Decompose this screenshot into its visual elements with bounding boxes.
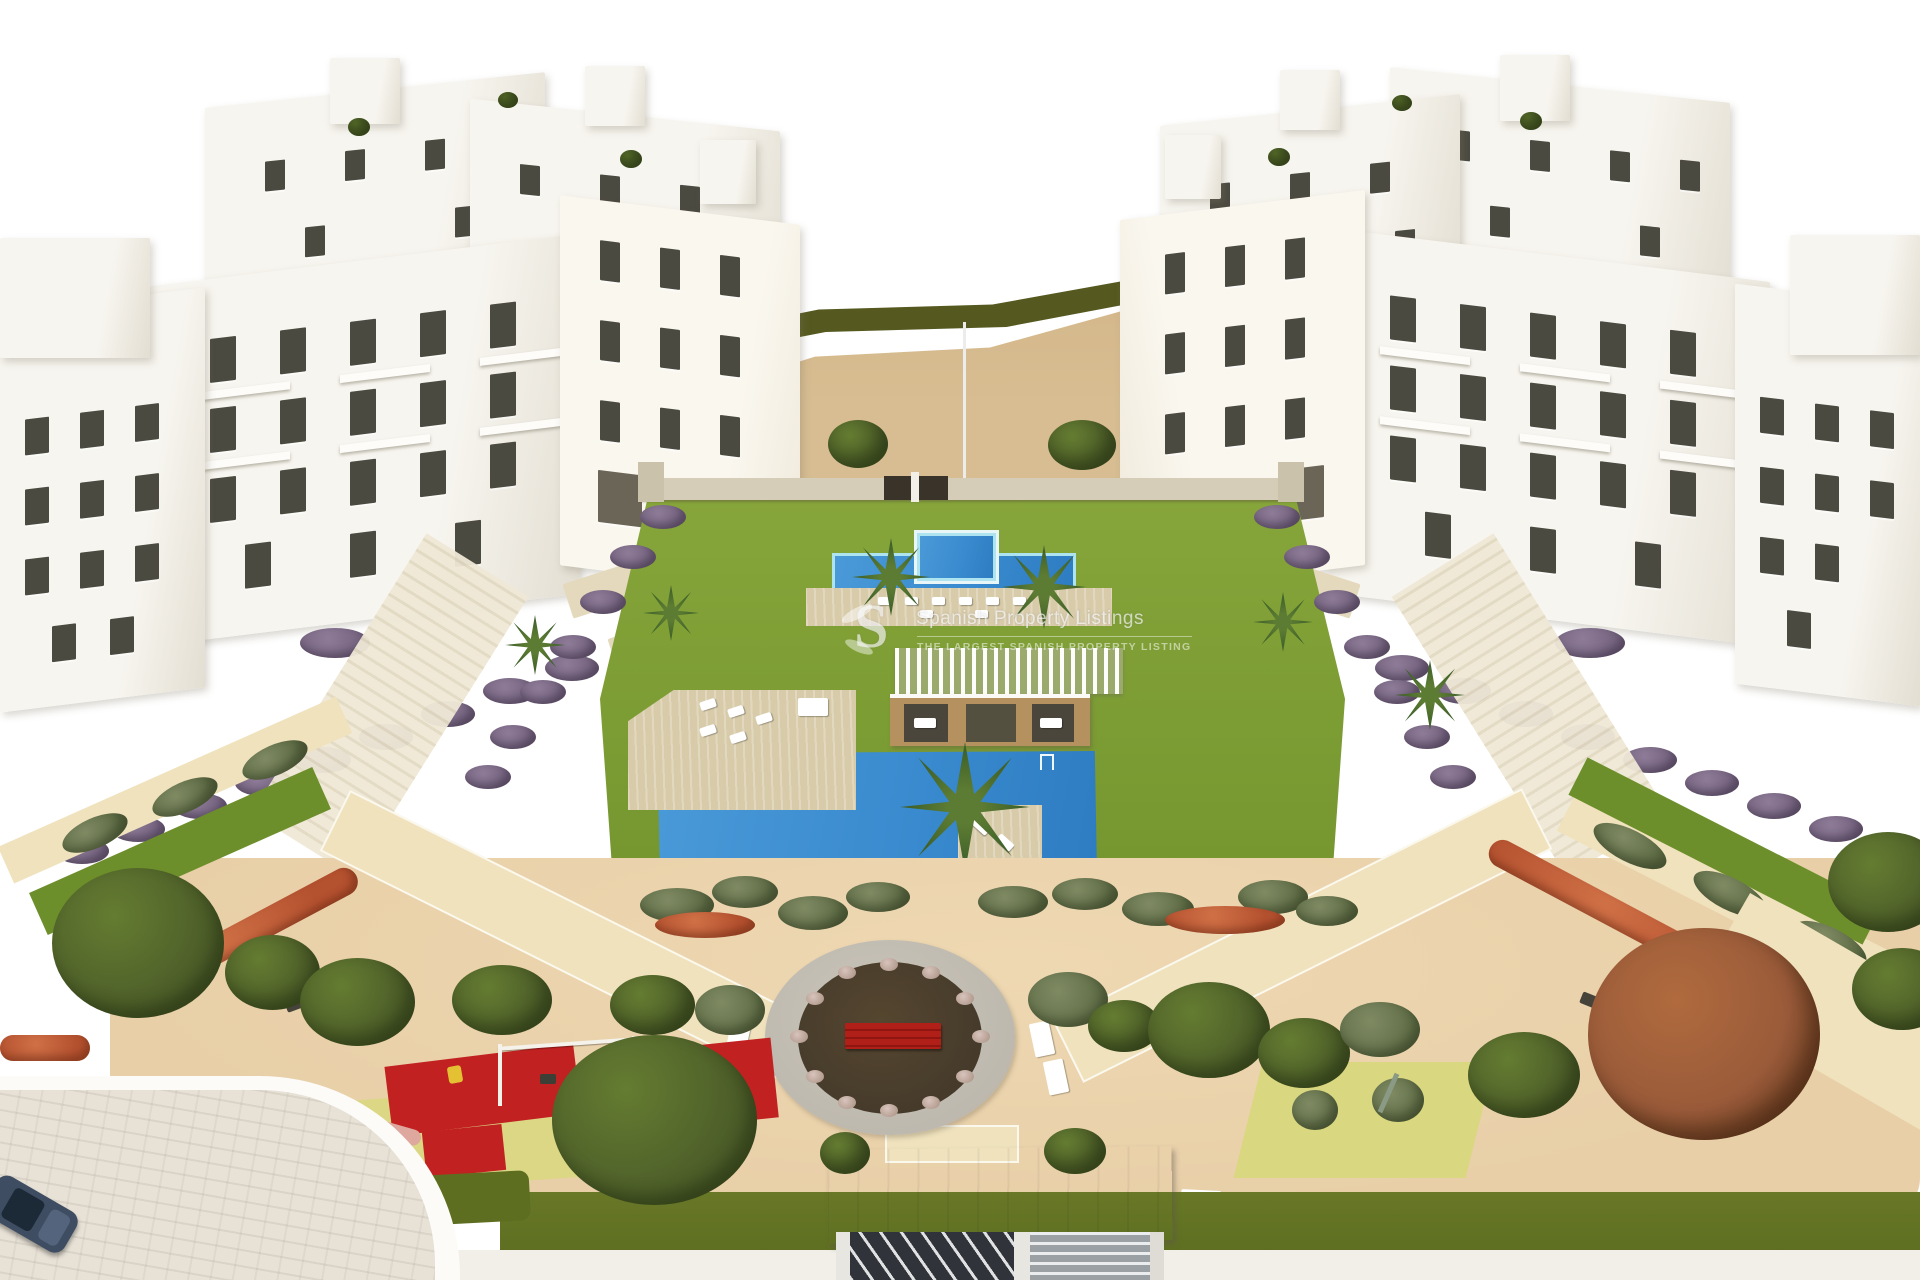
window: [720, 255, 740, 297]
window: [720, 335, 740, 377]
window: [1460, 444, 1486, 491]
balcony: [480, 347, 570, 366]
rose-bush: [922, 966, 940, 979]
window: [1815, 473, 1839, 512]
window: [1600, 391, 1626, 438]
tree: [610, 975, 695, 1035]
entrance-bush: [820, 1132, 870, 1174]
bush: [978, 886, 1048, 918]
building-left-tower: [330, 58, 400, 124]
window: [1165, 332, 1185, 374]
garden-wall: [640, 478, 1300, 500]
window: [305, 225, 325, 257]
flagpole: [963, 322, 966, 482]
window: [1760, 397, 1784, 436]
window: [1225, 405, 1245, 447]
rose-bush: [880, 958, 898, 971]
purple-hedge: [640, 505, 686, 529]
window: [1530, 527, 1556, 574]
red-flower-bush: [1165, 906, 1285, 934]
window: [1815, 543, 1839, 582]
rooftop-plant: [498, 92, 518, 108]
window: [600, 320, 620, 362]
window: [345, 149, 365, 181]
bush: [778, 896, 848, 930]
bush: [1296, 896, 1358, 926]
autumn-tree: [1588, 928, 1820, 1140]
pool-ladder: [1040, 754, 1054, 770]
stone-pillar: [638, 462, 664, 502]
play-mat-red: [422, 1124, 506, 1178]
bush: [846, 882, 910, 912]
window: [1285, 397, 1305, 439]
window: [1390, 295, 1416, 342]
window: [1225, 325, 1245, 367]
rooftop-plant: [1392, 95, 1412, 111]
entrance-pillar: [836, 1232, 850, 1280]
window: [1370, 162, 1390, 194]
gate-pillar: [911, 472, 919, 502]
balcony: [200, 451, 290, 470]
play-mat-yellow: [1234, 1062, 1495, 1178]
garden-tree: [828, 420, 888, 468]
building-left-tower: [700, 140, 756, 204]
rose-bush: [956, 992, 974, 1005]
purple-hedge: [610, 545, 656, 569]
window: [600, 400, 620, 442]
olive-tree: [52, 868, 224, 1018]
building-left-corner: [0, 238, 150, 358]
window: [1490, 206, 1510, 238]
bush: [1052, 878, 1118, 910]
play-equipment: [1292, 1090, 1338, 1130]
window: [1760, 537, 1784, 576]
window: [420, 450, 446, 497]
garden-gate: [918, 476, 948, 500]
window: [1760, 467, 1784, 506]
purple-hedge: [580, 590, 626, 614]
window: [1285, 237, 1305, 279]
entrance-bush: [1044, 1128, 1106, 1174]
window: [1635, 541, 1661, 588]
bush: [695, 985, 765, 1035]
building-left-facade: [150, 234, 580, 647]
balcony: [1380, 416, 1470, 435]
window: [1670, 400, 1696, 447]
window: [52, 623, 76, 662]
window: [350, 319, 376, 366]
purple-hedge: [520, 680, 566, 704]
rooftop-plant: [348, 118, 370, 136]
window: [135, 403, 159, 442]
rose-bush: [880, 1104, 898, 1117]
building-right-tower: [1165, 135, 1221, 199]
window: [660, 248, 680, 290]
window: [1870, 410, 1894, 449]
rooftop-plant: [620, 150, 642, 168]
window: [110, 616, 134, 655]
purple-hedge: [1344, 635, 1390, 659]
entrance-pillar: [1014, 1232, 1030, 1280]
window: [1165, 252, 1185, 294]
kids-pool: [917, 533, 996, 581]
building-right-tower: [1280, 70, 1340, 130]
purple-hedge: [1375, 655, 1429, 681]
purple-hedge: [1404, 725, 1450, 749]
window: [210, 336, 236, 383]
play-equipment: [1372, 1078, 1424, 1122]
purple-hedge: [1254, 505, 1300, 529]
property-render: S Spanish Property Listings THE LARGEST …: [0, 0, 1920, 1280]
window: [25, 557, 49, 596]
window: [1530, 453, 1556, 500]
tree: [300, 958, 415, 1046]
window: [350, 389, 376, 436]
window: [1225, 245, 1245, 287]
entrance-gate: [850, 1232, 1014, 1280]
window: [490, 441, 516, 488]
plaza-bench: [845, 1023, 941, 1049]
rose-bush: [838, 966, 856, 979]
window: [1530, 383, 1556, 430]
window: [1670, 330, 1696, 377]
window: [1670, 470, 1696, 517]
balcony: [340, 434, 430, 453]
grass-strip: [500, 1192, 1920, 1258]
rose-bush: [922, 1096, 940, 1109]
window: [350, 531, 376, 578]
watermark-title: Spanish Property Listings: [916, 608, 1144, 630]
window: [490, 371, 516, 418]
window: [25, 487, 49, 526]
balcony: [200, 381, 290, 400]
red-flower-bush: [655, 912, 755, 938]
purple-hedge: [1374, 680, 1420, 704]
poolside-table: [798, 698, 828, 716]
swing-seat: [540, 1074, 556, 1084]
window: [25, 417, 49, 456]
watermark: S Spanish Property Listings THE LARGEST …: [846, 596, 1186, 686]
window: [520, 164, 540, 196]
tree: [1148, 982, 1270, 1078]
window: [1600, 461, 1626, 508]
rose-bush: [972, 1030, 990, 1043]
garden-tree: [1048, 420, 1116, 470]
window: [1610, 150, 1630, 182]
window: [280, 397, 306, 444]
rose-bush: [806, 992, 824, 1005]
window: [1390, 365, 1416, 412]
window: [1165, 412, 1185, 454]
pool-house: [890, 694, 1090, 746]
garden-gate: [884, 476, 914, 500]
window: [1425, 512, 1451, 559]
window: [490, 301, 516, 348]
purple-hedge: [1314, 590, 1360, 614]
tree: [1468, 1032, 1580, 1118]
balcony: [340, 364, 430, 383]
window: [1460, 304, 1486, 351]
window: [1285, 317, 1305, 359]
sun-lounger: [914, 718, 936, 728]
purple-hedge: [465, 765, 511, 789]
window: [1460, 374, 1486, 421]
window: [660, 328, 680, 370]
rose-bush: [790, 1030, 808, 1043]
window: [1870, 480, 1894, 519]
window: [350, 459, 376, 506]
entrance-pillar: [1150, 1232, 1164, 1280]
window: [420, 380, 446, 427]
building-right-corner: [1790, 235, 1920, 355]
window: [1640, 225, 1660, 257]
window: [425, 139, 445, 171]
window: [80, 550, 104, 589]
balcony: [1520, 363, 1610, 382]
bush: [1340, 1002, 1420, 1057]
window: [1787, 610, 1811, 649]
sun-lounger: [1040, 718, 1062, 728]
building-left-tower: [585, 66, 645, 126]
window: [1600, 321, 1626, 368]
rooftop-plant: [1268, 148, 1290, 166]
swing-post: [498, 1044, 502, 1106]
tree: [1258, 1018, 1350, 1088]
rose-bush: [838, 1096, 856, 1109]
window: [1680, 160, 1700, 192]
purple-hedge: [490, 725, 536, 749]
olive-tree-large: [552, 1035, 757, 1205]
red-flower-hedge-left-low: [0, 1035, 90, 1061]
balcony: [480, 417, 570, 436]
purple-hedge: [1747, 793, 1801, 819]
window: [245, 542, 271, 589]
play-toy: [447, 1065, 464, 1084]
bush: [712, 876, 778, 908]
window: [210, 406, 236, 453]
tree: [452, 965, 552, 1035]
building-right-tower: [1500, 55, 1570, 121]
purple-hedge: [1284, 545, 1330, 569]
pool-house-opening: [966, 704, 1016, 742]
entrance-roof: [828, 1146, 1173, 1244]
window: [265, 159, 285, 191]
rooftop-plant: [1520, 112, 1542, 130]
building-right-facade: [1330, 228, 1770, 647]
window: [210, 476, 236, 523]
window: [280, 467, 306, 514]
balcony: [1520, 433, 1610, 452]
window: [600, 240, 620, 282]
window: [80, 480, 104, 519]
window: [280, 327, 306, 374]
window: [720, 415, 740, 457]
balcony: [1380, 346, 1470, 365]
window: [80, 410, 104, 449]
terrace-opening: [598, 470, 642, 527]
window: [1530, 313, 1556, 360]
stone-pillar: [1278, 462, 1304, 502]
rose-bush: [806, 1070, 824, 1083]
rose-bush: [956, 1070, 974, 1083]
window: [135, 543, 159, 582]
window: [1390, 435, 1416, 482]
purple-hedge: [1685, 770, 1739, 796]
entrance-mailboxes: [1030, 1232, 1150, 1280]
window: [420, 310, 446, 357]
window: [135, 473, 159, 512]
window: [1815, 403, 1839, 442]
window: [1530, 140, 1550, 172]
purple-hedge: [550, 635, 596, 659]
window: [660, 408, 680, 450]
purple-hedge: [1430, 765, 1476, 789]
purple-hedge: [1809, 816, 1863, 842]
watermark-subtitle: THE LARGEST SPANISH PROPERTY LISTING: [917, 636, 1192, 653]
